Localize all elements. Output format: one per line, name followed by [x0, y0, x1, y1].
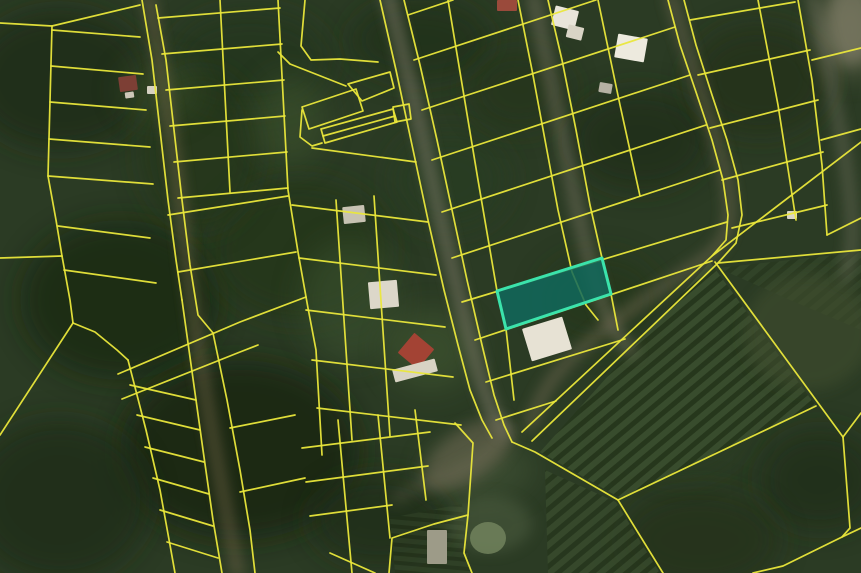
- vegetation-blob: [390, 130, 510, 230]
- building: [368, 280, 399, 309]
- building: [118, 75, 138, 92]
- building: [497, 0, 517, 11]
- building: [427, 530, 447, 564]
- map-viewport[interactable]: [0, 0, 861, 573]
- pool-feature: [470, 522, 506, 554]
- vegetation-blob: [570, 90, 710, 190]
- satellite-map-canvas[interactable]: [0, 0, 861, 573]
- vegetation-blob: [255, 75, 325, 165]
- building: [125, 91, 135, 98]
